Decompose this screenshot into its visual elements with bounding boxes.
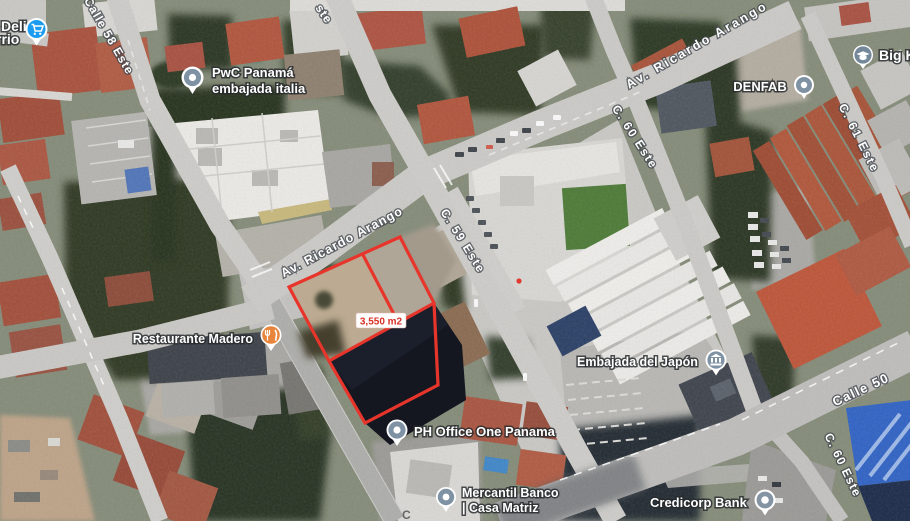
svg-text:DENFAB: DENFAB: [733, 79, 786, 94]
svg-text:Embajada del Japón: Embajada del Japón: [577, 355, 698, 369]
svg-text:C: C: [402, 508, 411, 521]
svg-text:PwC Panamá: PwC Panamá: [212, 65, 294, 80]
svg-text:Credicorp Bank: Credicorp Bank: [650, 495, 748, 510]
svg-text:Big K: Big K: [879, 47, 910, 63]
svg-text:PH Office One Panama: PH Office One Panama: [414, 424, 556, 439]
svg-text:rrio: rrio: [0, 31, 19, 47]
svg-text:Restaurante Madero: Restaurante Madero: [133, 332, 254, 346]
svg-text:embajada italia: embajada italia: [212, 81, 306, 96]
svg-text:Mercantil Banco: Mercantil Banco: [462, 486, 559, 500]
svg-text:| Casa Matriz: | Casa Matriz: [462, 501, 538, 515]
svg-text:3,550 m2: 3,550 m2: [360, 317, 403, 328]
